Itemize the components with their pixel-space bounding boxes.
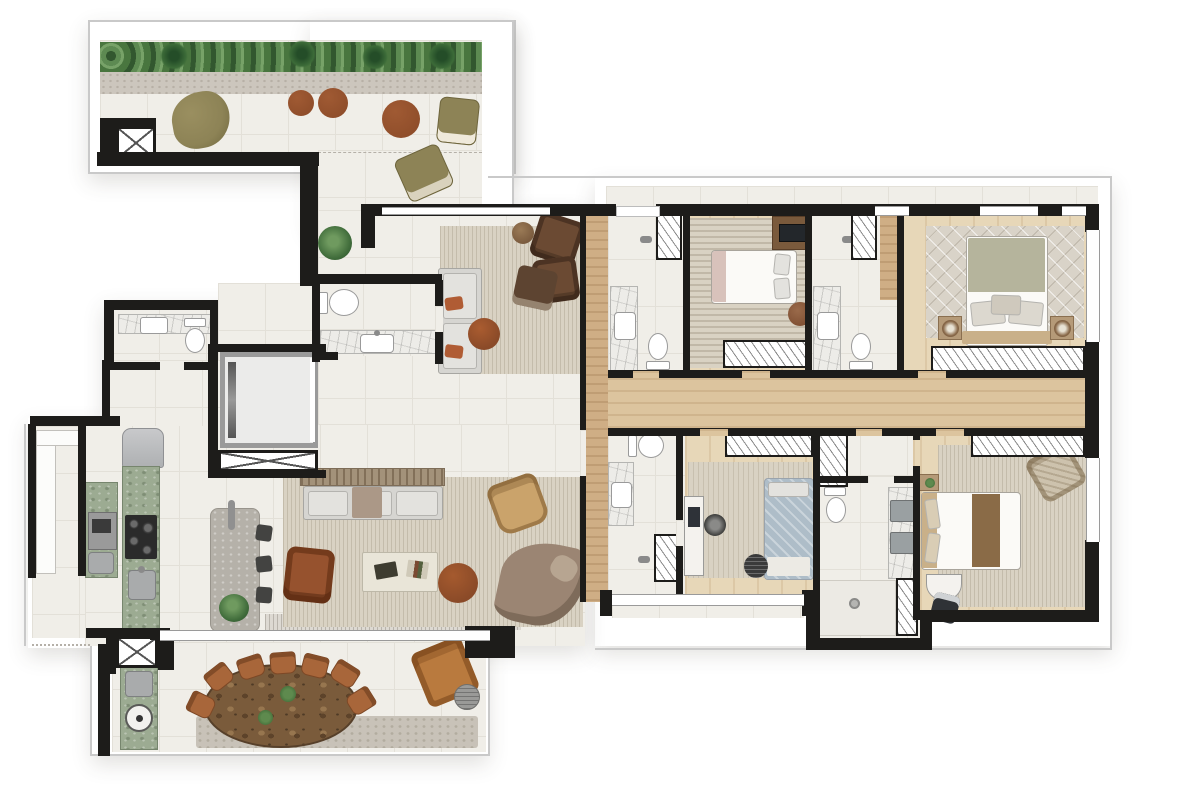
palm-icon (288, 40, 316, 68)
entry-door-opening (616, 206, 660, 217)
bed-throw (767, 557, 810, 576)
service-elevator-shaft-2 (116, 636, 158, 668)
bed-pillow (773, 277, 791, 299)
wall (312, 352, 338, 360)
pouf-small (288, 90, 314, 116)
wall (813, 428, 820, 642)
toilet-bowl (329, 289, 359, 316)
door-opening (918, 371, 946, 378)
palm-icon (362, 44, 388, 70)
tv-screen (779, 224, 807, 242)
parapet-line-right (1110, 176, 1112, 650)
wall (608, 370, 1095, 378)
sofa-cushion (396, 491, 438, 516)
door-opening (676, 520, 683, 546)
desk-chair (704, 514, 726, 536)
sitting-room-window (382, 207, 550, 215)
lumbar-pillow (444, 296, 464, 311)
gravel-strip (100, 72, 482, 94)
monitor-icon (688, 507, 700, 527)
island-plant (219, 594, 249, 622)
door-opening (868, 476, 894, 483)
nightstand (938, 316, 962, 340)
island-faucet (228, 500, 235, 530)
parapet-line-top (488, 176, 1112, 178)
bed-throw (968, 238, 1045, 292)
sitting-pouf (468, 318, 500, 350)
master-bed (966, 236, 1048, 346)
chaise-body (491, 534, 591, 634)
toilet-tank (849, 361, 873, 370)
wardrobe (723, 340, 811, 368)
wall (1085, 204, 1099, 232)
bathroom-1-toilet (644, 333, 672, 371)
dining-line-bottom (90, 754, 490, 756)
nightstand (1050, 316, 1074, 340)
headboard (962, 331, 1052, 344)
wall (98, 644, 110, 756)
wall (208, 344, 326, 352)
wardrobe (931, 346, 1085, 372)
living-sofa (303, 486, 443, 520)
table-lamp-icon (1054, 320, 1071, 337)
bedroom-3-bed (921, 492, 1021, 570)
wall (676, 428, 683, 604)
cooktop (125, 515, 157, 559)
master-window-wall (1086, 230, 1100, 342)
bar-stool (255, 586, 272, 603)
lumbar-pillow (444, 344, 463, 359)
potted-plant (318, 226, 352, 260)
window (980, 206, 1038, 216)
wall (30, 416, 82, 426)
bar-stool (255, 524, 273, 542)
door-opening (913, 440, 920, 466)
faucet-icon (374, 330, 380, 336)
toilet-bowl (826, 497, 846, 523)
elevator-sill (310, 358, 315, 442)
bedroom-1-bed (711, 250, 797, 304)
door-opening (856, 429, 882, 436)
wall (805, 212, 812, 378)
bathroom-1-sink (614, 312, 636, 340)
wall-oven (88, 512, 117, 550)
wall (897, 212, 904, 378)
door-opening (580, 430, 586, 476)
toilet-tank (628, 435, 637, 457)
bed-cushion (924, 532, 941, 564)
wall (208, 470, 326, 478)
powder-sink (360, 334, 394, 353)
living-pouf (438, 563, 478, 603)
pouf-large (382, 100, 420, 138)
corridor-floor (608, 378, 1095, 428)
wall (312, 274, 442, 284)
shower-glass (851, 212, 877, 260)
dining-line-left (90, 638, 92, 756)
palm-icon (160, 42, 188, 70)
barbecue-sink (125, 671, 153, 697)
roof-edge-dashed-line (318, 152, 482, 155)
bed-pillow (991, 294, 1022, 315)
bed-cushion (924, 498, 941, 530)
table-plant (280, 686, 296, 702)
bed-foot-blanket (712, 251, 726, 302)
utility-edge-trim (32, 636, 90, 646)
bed-pillow (773, 253, 791, 276)
grill (125, 704, 153, 732)
terrace-lounge-chair (436, 96, 481, 146)
bedroom-3-window-wall (1086, 458, 1100, 542)
floor-plan (0, 0, 1200, 809)
window (1062, 206, 1086, 216)
nightstand (919, 474, 939, 491)
desk (684, 496, 704, 576)
toilet-bowl (648, 333, 668, 360)
wall (100, 118, 156, 126)
bedroom-2-pouf (744, 554, 768, 578)
bed-pillow (768, 482, 809, 497)
toilet-bowl (638, 433, 664, 458)
elevator-door (228, 362, 236, 438)
kitchen-sink (128, 570, 156, 600)
shower-glass (656, 212, 682, 260)
wall (28, 424, 36, 578)
toilet-tank (824, 487, 846, 496)
window-wall-south (612, 594, 804, 606)
sofa-throw (352, 487, 382, 518)
wall (600, 590, 612, 616)
coffee-table (362, 552, 438, 592)
wall (300, 152, 318, 286)
living-window-wall (160, 630, 490, 641)
book-stack (374, 561, 398, 580)
shower-drain-icon (849, 598, 860, 609)
wall (97, 152, 319, 166)
palm-icon (428, 42, 456, 70)
bathroom-4-toilet (628, 432, 666, 460)
door-opening (633, 371, 659, 378)
elevator-shaft-hatch (218, 450, 318, 472)
wall (208, 344, 218, 478)
wall (112, 300, 218, 310)
bed-runner (972, 494, 1000, 567)
wall (813, 476, 920, 483)
utility-line-left (24, 424, 26, 646)
leather-armchair (282, 546, 335, 605)
wall (78, 424, 86, 576)
oven-window (92, 519, 111, 533)
wall (683, 212, 690, 378)
wall (806, 638, 928, 650)
private-elevator (220, 352, 318, 448)
utility-counter (36, 430, 56, 574)
powder-toilet (318, 288, 362, 318)
toilet-bowl (851, 333, 871, 360)
toilet-bowl (185, 328, 205, 353)
bathroom-2-toilet (847, 333, 875, 371)
guest-wc-toilet (182, 318, 208, 354)
door-opening (742, 371, 770, 378)
bar-stool (255, 555, 273, 573)
bathroom-2-sink (817, 312, 839, 340)
entry-hallway-floor (584, 212, 610, 602)
shower-head-icon (640, 236, 652, 243)
sofa-cushion (308, 491, 348, 516)
door-opening (936, 429, 964, 436)
wall (580, 210, 586, 602)
shower-head-icon (638, 556, 650, 563)
wall (361, 204, 375, 248)
dining-chair (269, 651, 296, 675)
dining-side-table (454, 684, 480, 710)
bedroom-2-bed (764, 478, 814, 580)
elevator-car (225, 357, 313, 443)
door-opening (700, 429, 728, 436)
bathroom-3-toilet (823, 487, 849, 525)
wall (1085, 340, 1099, 458)
grill-burner (136, 715, 143, 722)
side-table (512, 222, 534, 244)
wall (112, 362, 160, 370)
toilet-tank (646, 361, 670, 370)
bathroom-4-sink (611, 482, 632, 508)
table-lamp-icon (942, 320, 959, 337)
guest-wc-sink (140, 317, 168, 334)
plant-icon (925, 478, 935, 488)
door-opening (435, 306, 443, 332)
square-ottoman (511, 264, 558, 311)
refrigerator (122, 428, 164, 468)
toilet-tank (184, 318, 206, 327)
wall (928, 610, 1095, 622)
pouf-small (318, 88, 348, 118)
tall-unit-sink (88, 552, 114, 574)
faucet-icon (138, 566, 145, 573)
table-plant (258, 710, 273, 725)
ledge (612, 604, 804, 618)
book-stack (406, 560, 429, 580)
window (875, 206, 909, 216)
